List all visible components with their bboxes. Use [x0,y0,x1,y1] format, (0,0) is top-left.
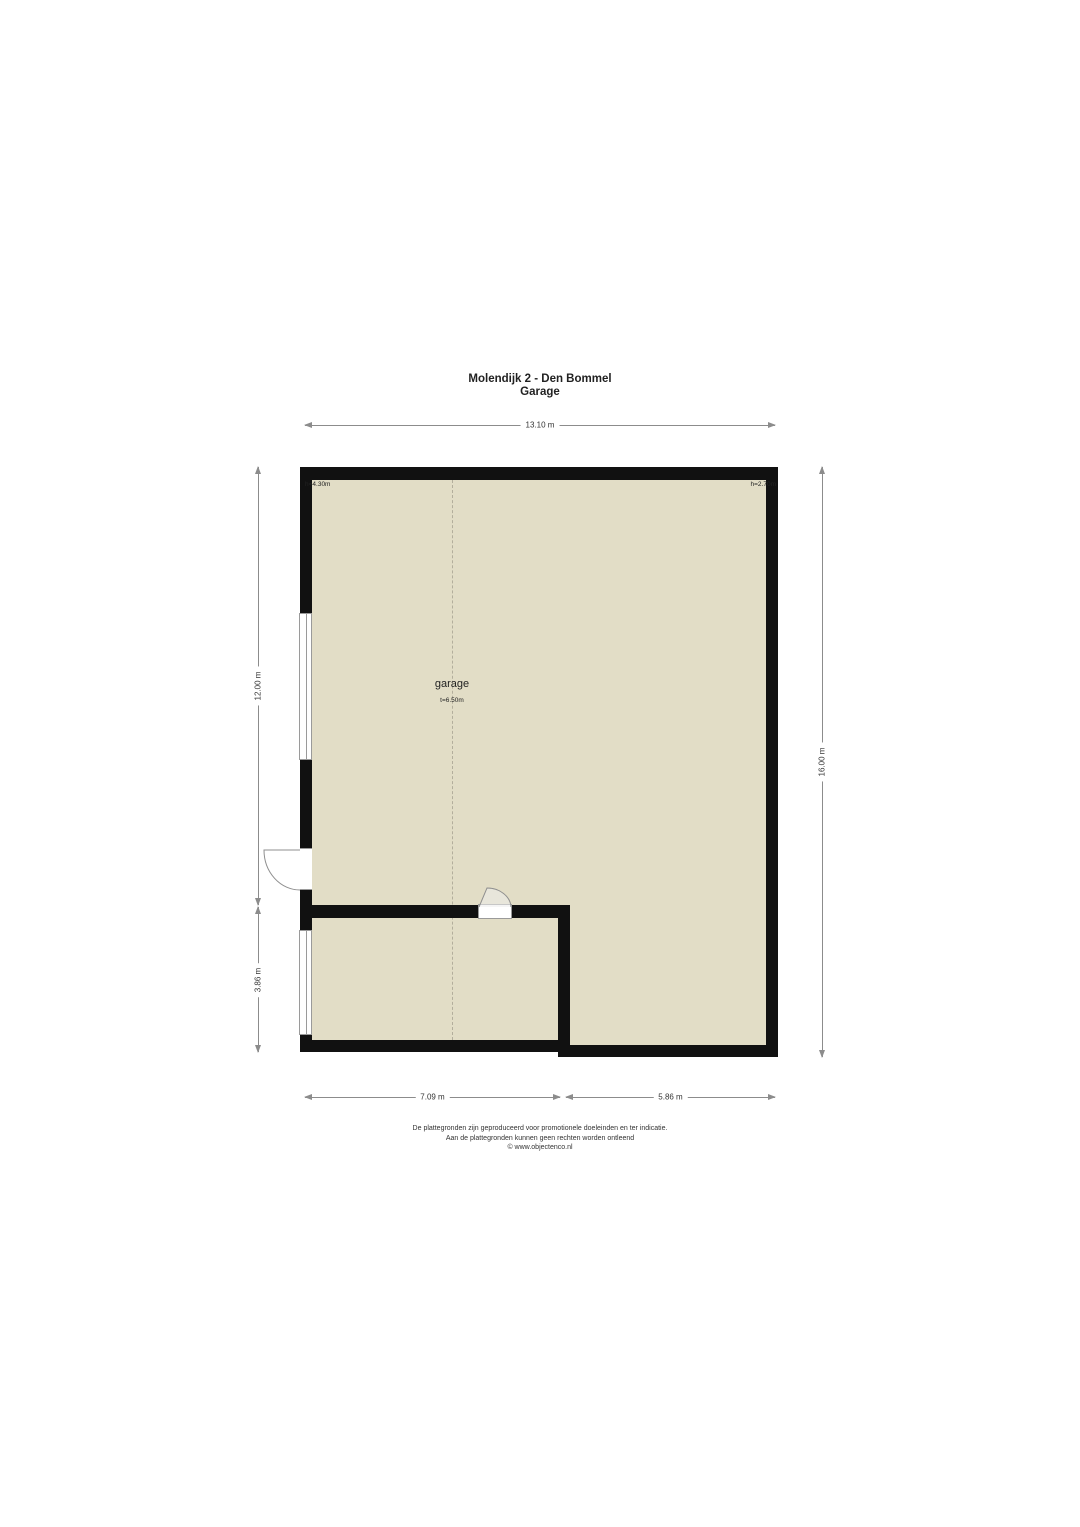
window-left-upper [299,613,312,760]
disclaimer-line-3: © www.objectenco.nl [0,1143,1080,1153]
disclaimer-line-2: Aan de plattegronden kunnen geen rechten… [0,1134,1080,1144]
arrow-down-icon [255,898,261,906]
arrow-up-icon [255,466,261,474]
garage-floor [300,467,778,1052]
page-subtitle: Garage [0,386,1080,399]
room-label-garage: garage [392,678,512,690]
wall-bottom-left [300,1040,570,1052]
footer-disclaimer: De plattegronden zijn geproduceerd voor … [0,1124,1080,1153]
arrow-left-icon [565,1094,573,1100]
window-glass-line [306,614,307,759]
dimension-top-label: 13.10 m [521,421,560,430]
wall-top [300,467,778,480]
dimension-left-upper-label: 12.00 m [254,667,263,706]
door-left-swing-arc-icon [256,845,304,893]
arrow-up-icon [819,466,825,474]
wall-interior-horizontal [300,905,570,918]
arrow-right-icon [768,422,776,428]
floorplan-page: Molendijk 2 - Den Bommel Garage garage t… [0,0,1080,1527]
title-block: Molendijk 2 - Den Bommel Garage [0,373,1080,399]
arrow-down-icon [819,1050,825,1058]
disclaimer-line-1: De plattegronden zijn geproduceerd voor … [0,1124,1080,1134]
dimension-right-label: 16.00 m [818,743,827,782]
wall-right [766,467,778,1057]
room-size-label: t=6.50m [392,697,512,704]
ceiling-height-label-left: h=4.30m [305,481,330,488]
page-title: Molendijk 2 - Den Bommel [0,373,1080,386]
arrow-right-icon [553,1094,561,1100]
wall-interior-vertical [558,905,570,1045]
dimension-bottom-right-label: 5.86 m [653,1093,687,1102]
dimension-left-lower-label: 3.86 m [254,962,263,996]
ceiling-height-label-right: h=2.70m [712,481,776,488]
roof-ridge-line [452,480,453,1040]
wall-bottom-right [558,1045,778,1057]
arrow-left-icon [304,422,312,428]
arrow-left-icon [304,1094,312,1100]
window-glass-line [306,931,307,1034]
dimension-bottom-left-label: 7.09 m [415,1093,449,1102]
arrow-down-icon [255,1045,261,1053]
door-interior-swing-arc-icon [470,882,520,910]
arrow-up-icon [255,906,261,914]
window-left-lower [299,930,312,1035]
arrow-right-icon [768,1094,776,1100]
